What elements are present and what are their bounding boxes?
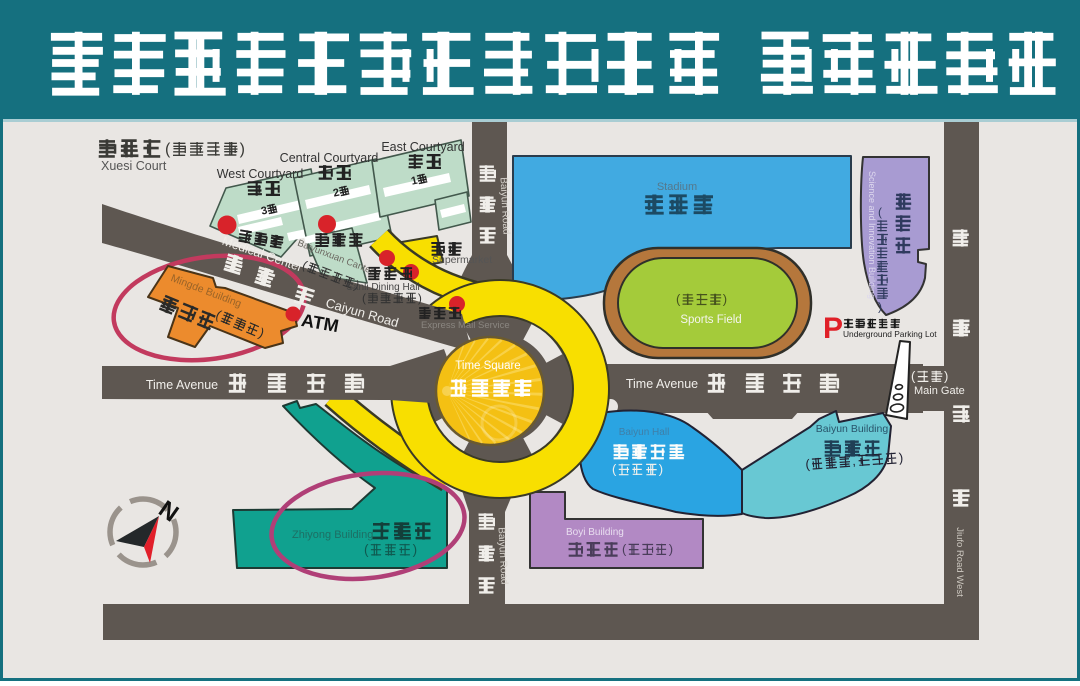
svg-text:): ) — [413, 542, 418, 557]
svg-text:Baiyun Hall: Baiyun Hall — [619, 427, 670, 438]
svg-text:East Courtyard: East Courtyard — [381, 140, 464, 154]
svg-text:(: ( — [612, 462, 617, 477]
svg-text:Main Gate: Main Gate — [914, 385, 965, 397]
svg-text:Time Avenue: Time Avenue — [626, 377, 698, 391]
svg-text:Express Mail Service: Express Mail Service — [421, 320, 510, 331]
svg-text:): ) — [878, 300, 882, 314]
svg-text:(: ( — [878, 205, 882, 219]
svg-text:P: P — [823, 312, 843, 345]
svg-text:Time Avenue: Time Avenue — [146, 378, 218, 392]
svg-text:Sports Field: Sports Field — [680, 314, 741, 326]
svg-text:(: ( — [676, 292, 681, 307]
svg-text:): ) — [240, 141, 245, 158]
svg-text:Zhiyong Building: Zhiyong Building — [292, 529, 373, 541]
svg-text:(: ( — [622, 542, 627, 557]
svg-text:Time Square: Time Square — [455, 360, 520, 372]
svg-text:Baiyun Building: Baiyun Building — [816, 423, 889, 435]
svg-text:Underground Parking Lot: Underground Parking Lot — [843, 329, 937, 339]
svg-text:): ) — [418, 291, 422, 305]
svg-text:Jiufo Road West: Jiufo Road West — [954, 527, 965, 597]
svg-text:West Courtyard: West Courtyard — [217, 167, 304, 181]
svg-text:(: ( — [364, 542, 369, 557]
svg-text:): ) — [669, 542, 673, 557]
svg-text:Science and Innovation Buildin: Science and Innovation Building — [867, 171, 877, 299]
svg-text:(: ( — [911, 369, 916, 384]
svg-text:Sanli Dining Hall: Sanli Dining Hall — [346, 282, 419, 293]
svg-text:Stadium: Stadium — [657, 181, 697, 193]
svg-text:Boyi Building: Boyi Building — [566, 527, 624, 538]
svg-text:): ) — [723, 292, 727, 307]
svg-text:): ) — [659, 462, 663, 477]
svg-text:): ) — [944, 369, 948, 384]
svg-text:Xuesi Court: Xuesi Court — [101, 159, 167, 173]
svg-text:(: ( — [165, 141, 171, 158]
svg-text:Central Courtyard: Central Courtyard — [280, 151, 379, 165]
svg-text:(: ( — [362, 291, 366, 305]
svg-text:Supermarket: Supermarket — [432, 254, 492, 266]
